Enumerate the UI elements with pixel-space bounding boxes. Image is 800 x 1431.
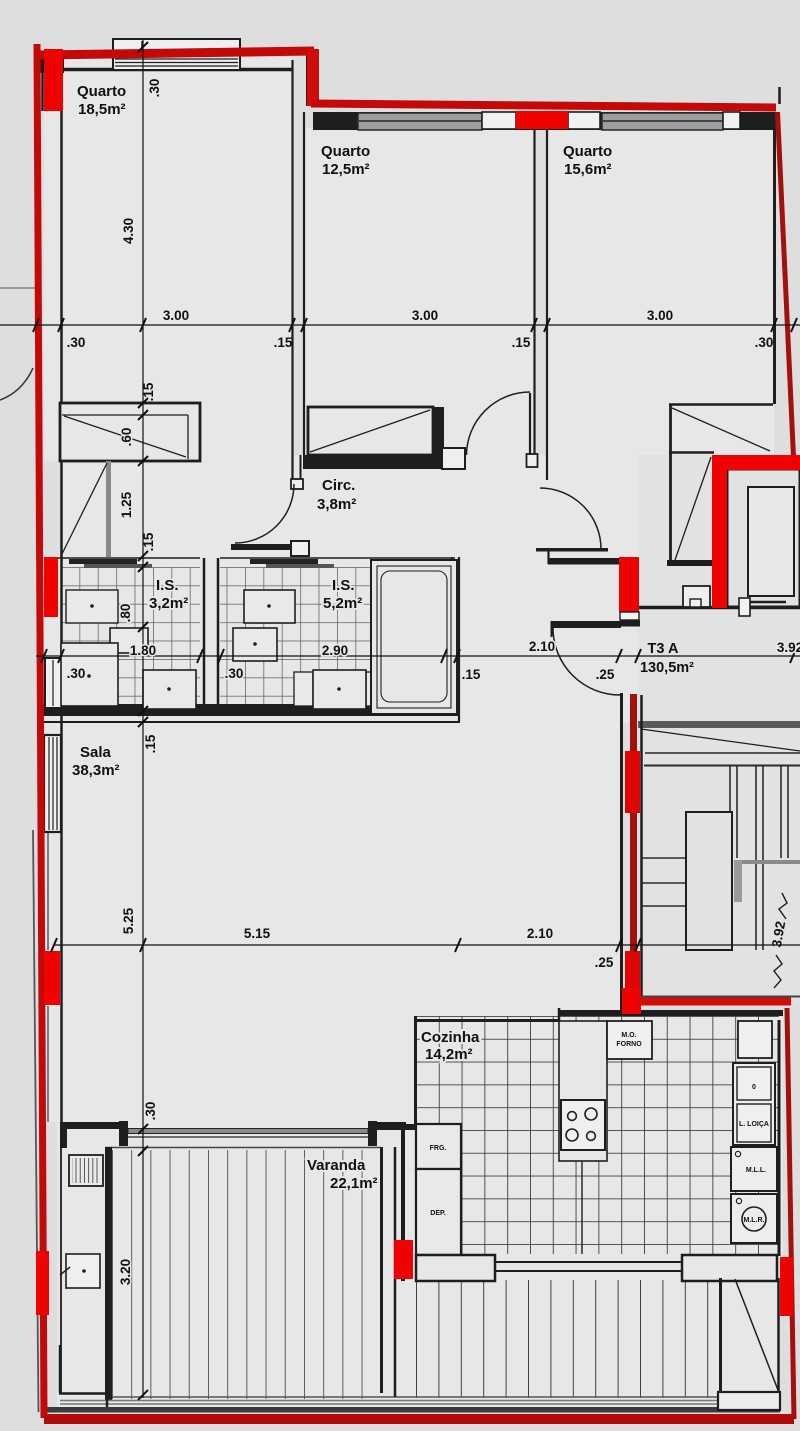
- svg-text:M.L.L.: M.L.L.: [746, 1167, 766, 1174]
- svg-text:3.00: 3.00: [163, 308, 189, 323]
- svg-text:12,5m²: 12,5m²: [322, 161, 370, 178]
- svg-text:130,5m²: 130,5m²: [640, 660, 694, 676]
- svg-text:5.25: 5.25: [121, 907, 136, 934]
- svg-text:2.90: 2.90: [322, 643, 348, 658]
- svg-text:1.80: 1.80: [130, 643, 156, 658]
- svg-text:Quarto: Quarto: [563, 143, 612, 160]
- svg-text:1.25: 1.25: [119, 491, 134, 518]
- svg-text:3.00: 3.00: [412, 308, 438, 323]
- svg-text:Sala: Sala: [80, 744, 112, 761]
- svg-text:.15: .15: [462, 667, 481, 682]
- svg-text:.30: .30: [147, 79, 162, 98]
- svg-text:M.O.: M.O.: [621, 1032, 636, 1039]
- svg-text:.30: .30: [67, 666, 86, 681]
- svg-text:5,2m²: 5,2m²: [323, 595, 362, 612]
- svg-text:.25: .25: [596, 667, 615, 682]
- svg-text:Circ.: Circ.: [322, 477, 355, 494]
- svg-text:.15: .15: [143, 734, 158, 753]
- svg-text:4.30: 4.30: [121, 218, 136, 244]
- svg-text:.80: .80: [118, 604, 133, 623]
- svg-text:3.92: 3.92: [777, 640, 800, 655]
- svg-text:2.10: 2.10: [529, 639, 555, 654]
- svg-text:.30: .30: [225, 666, 244, 681]
- svg-text:3,8m²: 3,8m²: [317, 496, 356, 513]
- svg-text:T3 A: T3 A: [648, 641, 679, 657]
- svg-text:.15: .15: [512, 335, 531, 350]
- svg-text:.25: .25: [595, 955, 614, 970]
- svg-text:.15: .15: [141, 382, 156, 401]
- svg-text:Varanda: Varanda: [307, 1157, 366, 1174]
- svg-text:3.20: 3.20: [118, 1259, 133, 1285]
- svg-text:.30: .30: [755, 335, 774, 350]
- svg-text:I.S.: I.S.: [332, 577, 355, 594]
- svg-text:0: 0: [752, 1084, 756, 1091]
- svg-text:.30: .30: [67, 335, 86, 350]
- svg-text:FRG.: FRG.: [430, 1145, 447, 1152]
- svg-text:3,2m²: 3,2m²: [149, 595, 188, 612]
- svg-text:.60: .60: [119, 428, 134, 447]
- svg-text:2.10: 2.10: [527, 926, 553, 941]
- svg-text:3.00: 3.00: [647, 308, 673, 323]
- svg-text:18,5m²: 18,5m²: [78, 101, 126, 118]
- svg-text:Quarto: Quarto: [321, 143, 370, 160]
- svg-text:14,2m²: 14,2m²: [425, 1046, 473, 1063]
- svg-text:DEP.: DEP.: [430, 1210, 445, 1217]
- svg-text:5.15: 5.15: [244, 926, 271, 941]
- svg-text:Cozinha: Cozinha: [421, 1029, 480, 1046]
- svg-text:M.L.R.: M.L.R.: [744, 1217, 765, 1224]
- svg-text:.15: .15: [274, 335, 293, 350]
- svg-text:L. LOIÇA: L. LOIÇA: [739, 1121, 769, 1128]
- svg-text:I.S.: I.S.: [156, 577, 179, 594]
- svg-text:Quarto: Quarto: [77, 83, 126, 100]
- svg-text:22,1m²: 22,1m²: [330, 1175, 378, 1192]
- svg-text:15,6m²: 15,6m²: [564, 161, 612, 178]
- svg-text:.15: .15: [141, 532, 156, 551]
- svg-text:.30: .30: [143, 1102, 158, 1121]
- svg-text:FORNO: FORNO: [616, 1041, 642, 1048]
- svg-text:38,3m²: 38,3m²: [72, 762, 120, 779]
